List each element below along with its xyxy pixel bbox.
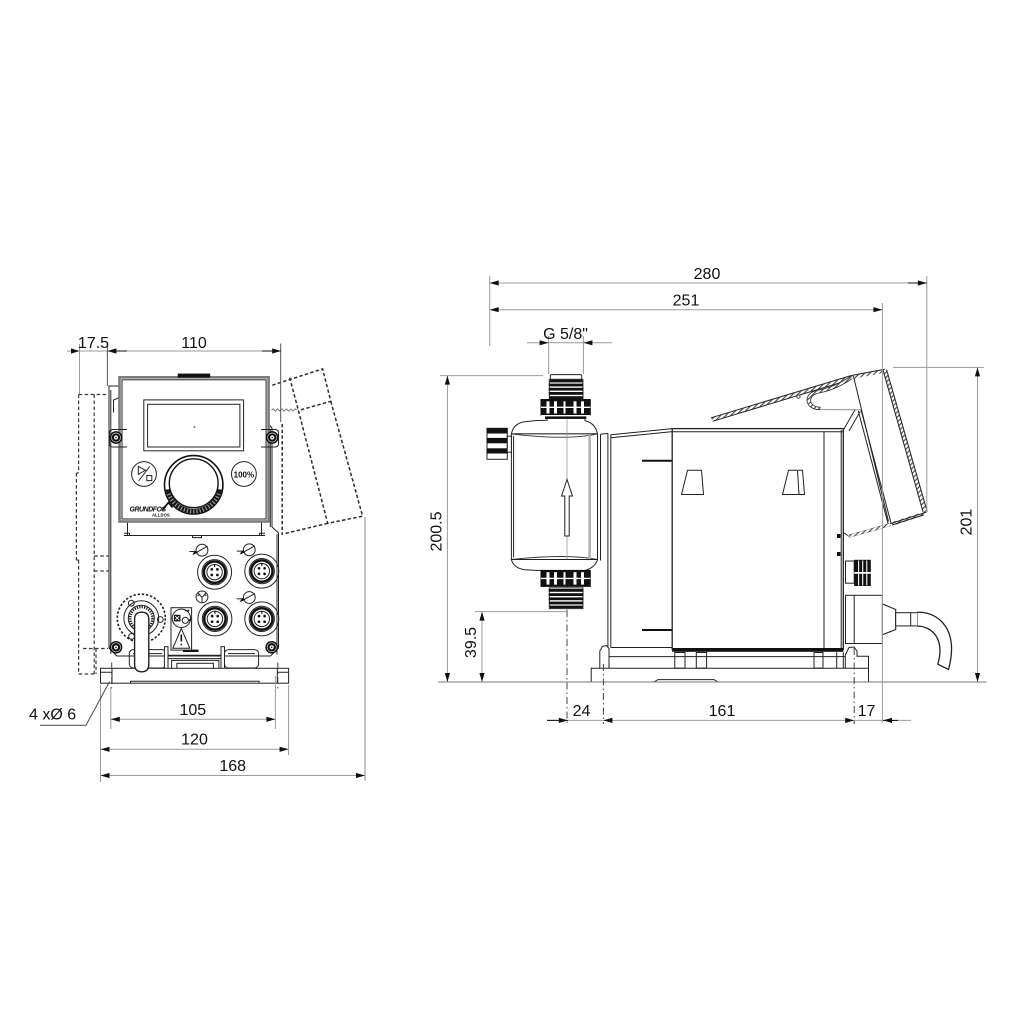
svg-text:17: 17: [858, 703, 876, 720]
svg-text:120: 120: [181, 732, 208, 749]
svg-text:200.5: 200.5: [429, 511, 446, 551]
svg-text:4 xØ 6: 4 xØ 6: [29, 707, 76, 724]
svg-text:168: 168: [219, 758, 246, 775]
svg-text:110: 110: [181, 335, 207, 352]
svg-text:100%: 100%: [234, 470, 254, 479]
svg-text:201: 201: [959, 509, 976, 536]
svg-text:280: 280: [694, 266, 721, 283]
svg-text:251: 251: [673, 293, 700, 310]
svg-text:ALLDOS: ALLDOS: [152, 513, 170, 518]
svg-text:161: 161: [709, 703, 736, 720]
svg-text:105: 105: [179, 702, 206, 719]
svg-text:39.5: 39.5: [463, 627, 480, 658]
svg-text:G 5/8": G 5/8": [543, 326, 588, 343]
svg-text:17.5: 17.5: [78, 335, 109, 352]
svg-text:24: 24: [573, 703, 591, 720]
